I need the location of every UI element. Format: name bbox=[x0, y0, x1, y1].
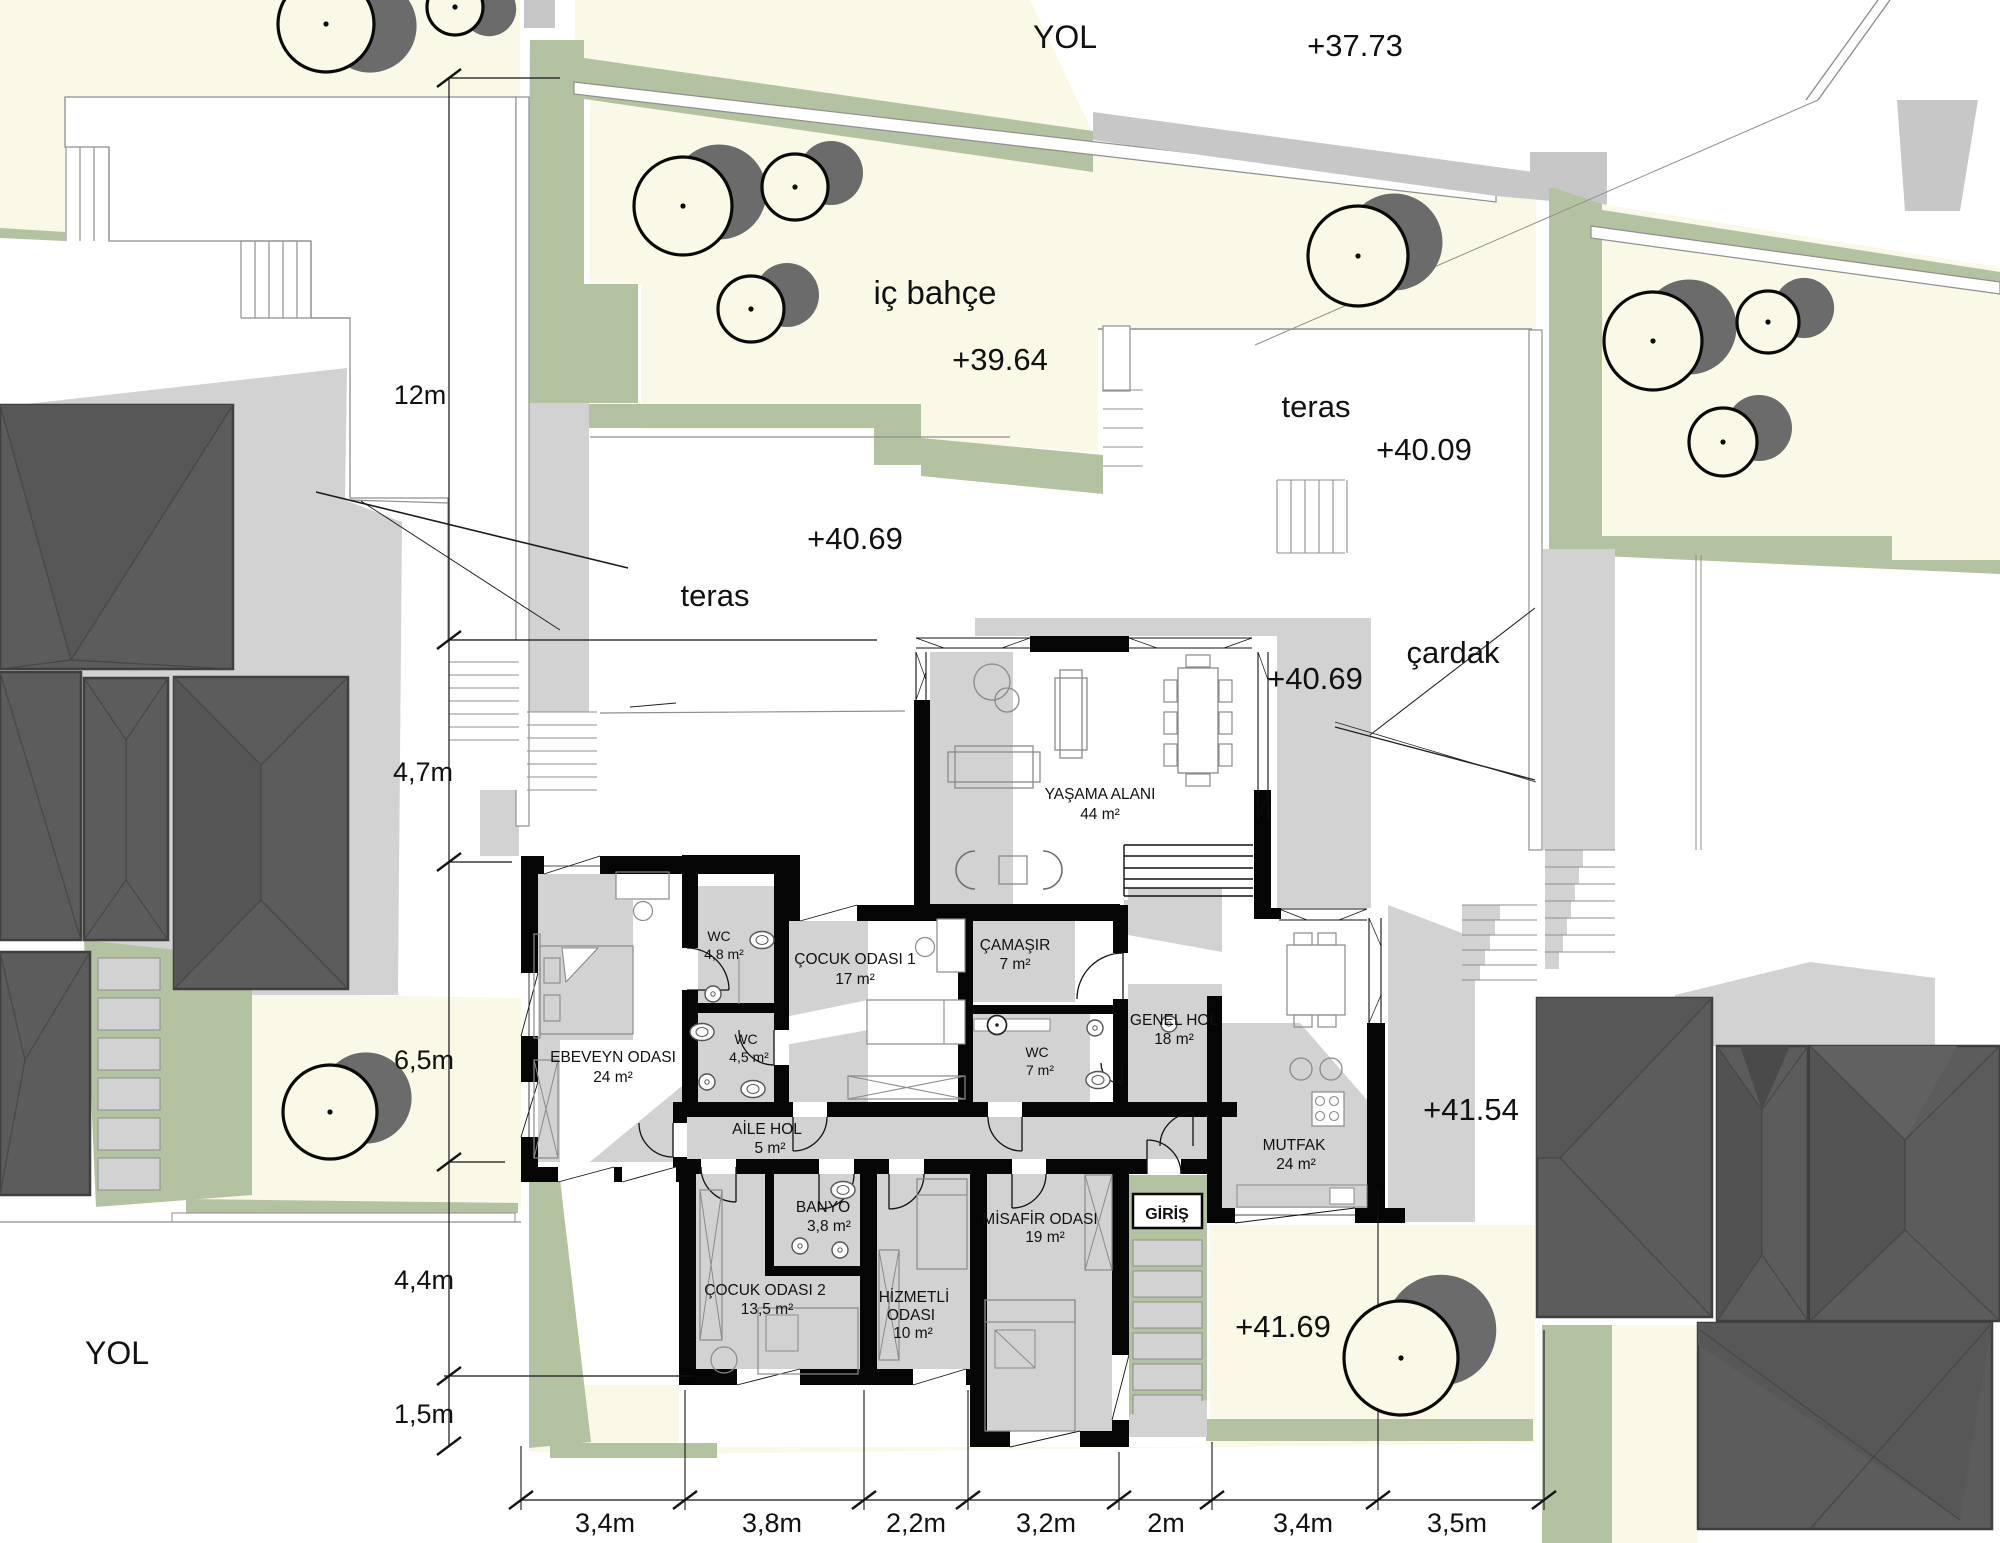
svg-text:12m: 12m bbox=[394, 380, 447, 410]
svg-text:1,5m: 1,5m bbox=[394, 1399, 454, 1429]
svg-text:WC: WC bbox=[1025, 1044, 1048, 1060]
svg-text:YAŞAMA ALANI: YAŞAMA ALANI bbox=[1045, 786, 1156, 803]
svg-text:teras: teras bbox=[1282, 389, 1351, 424]
svg-text:WC: WC bbox=[707, 928, 730, 944]
svg-text:+40.09: +40.09 bbox=[1376, 432, 1472, 467]
svg-text:19 m²: 19 m² bbox=[1025, 1229, 1065, 1246]
svg-text:44 m²: 44 m² bbox=[1080, 806, 1120, 823]
svg-text:4,7m: 4,7m bbox=[393, 757, 453, 787]
svg-text:3,8 m²: 3,8 m² bbox=[807, 1218, 851, 1235]
svg-text:+41.69: +41.69 bbox=[1235, 1309, 1331, 1344]
svg-text:13,5 m²: 13,5 m² bbox=[741, 1301, 794, 1318]
svg-text:çardak: çardak bbox=[1406, 635, 1500, 670]
svg-text:3,4m: 3,4m bbox=[1273, 1508, 1333, 1538]
svg-text:2,2m: 2,2m bbox=[886, 1508, 946, 1538]
svg-text:EBEVEYN ODASI: EBEVEYN ODASI bbox=[550, 1049, 676, 1066]
svg-text:3,5m: 3,5m bbox=[1427, 1508, 1487, 1538]
svg-text:7 m²: 7 m² bbox=[1026, 1062, 1054, 1078]
svg-text:+41.54: +41.54 bbox=[1423, 1092, 1519, 1127]
svg-text:teras: teras bbox=[681, 578, 750, 613]
svg-text:+40.69: +40.69 bbox=[807, 521, 903, 556]
svg-text:ÇOCUK ODASI 1: ÇOCUK ODASI 1 bbox=[794, 951, 915, 968]
svg-text:HİZMETLİ: HİZMETLİ bbox=[879, 1288, 950, 1306]
svg-text:ÇOCUK ODASI 2: ÇOCUK ODASI 2 bbox=[704, 1282, 825, 1299]
svg-text:10 m²: 10 m² bbox=[893, 1325, 933, 1342]
svg-text:4,8 m²: 4,8 m² bbox=[704, 946, 744, 962]
svg-text:BANYO: BANYO bbox=[796, 1199, 850, 1216]
svg-text:MİSAFİR ODASI: MİSAFİR ODASI bbox=[982, 1210, 1097, 1228]
svg-text:+40.69: +40.69 bbox=[1267, 661, 1363, 696]
svg-text:18 m²: 18 m² bbox=[1154, 1031, 1194, 1048]
svg-text:5 m²: 5 m² bbox=[755, 1140, 786, 1157]
svg-text:2m: 2m bbox=[1147, 1508, 1185, 1538]
svg-text:WC: WC bbox=[734, 1031, 757, 1047]
svg-text:GENEL HOL: GENEL HOL bbox=[1130, 1012, 1219, 1029]
svg-text:7 m²: 7 m² bbox=[1000, 956, 1031, 973]
svg-text:4,4m: 4,4m bbox=[394, 1265, 454, 1295]
svg-text:24 m²: 24 m² bbox=[1276, 1156, 1316, 1173]
svg-text:+37.73: +37.73 bbox=[1307, 28, 1403, 63]
svg-text:YOL: YOL bbox=[1033, 19, 1097, 55]
svg-text:ODASI: ODASI bbox=[887, 1307, 935, 1324]
svg-text:3,8m: 3,8m bbox=[742, 1508, 802, 1538]
svg-text:17 m²: 17 m² bbox=[835, 971, 875, 988]
svg-text:3,2m: 3,2m bbox=[1016, 1508, 1076, 1538]
svg-text:AİLE HOL: AİLE HOL bbox=[732, 1120, 802, 1138]
svg-text:YOL: YOL bbox=[85, 1335, 149, 1371]
svg-text:6,5m: 6,5m bbox=[394, 1045, 454, 1075]
svg-text:24 m²: 24 m² bbox=[593, 1069, 633, 1086]
svg-text:4,5 m²: 4,5 m² bbox=[729, 1049, 769, 1065]
svg-text:ÇAMAŞIR: ÇAMAŞIR bbox=[980, 937, 1051, 954]
svg-text:iç bahçe: iç bahçe bbox=[874, 274, 997, 311]
svg-text:3,4m: 3,4m bbox=[575, 1508, 635, 1538]
svg-text:GİRİŞ: GİRİŞ bbox=[1145, 1205, 1189, 1223]
svg-text:+39.64: +39.64 bbox=[952, 342, 1048, 377]
svg-text:MUTFAK: MUTFAK bbox=[1263, 1137, 1327, 1154]
